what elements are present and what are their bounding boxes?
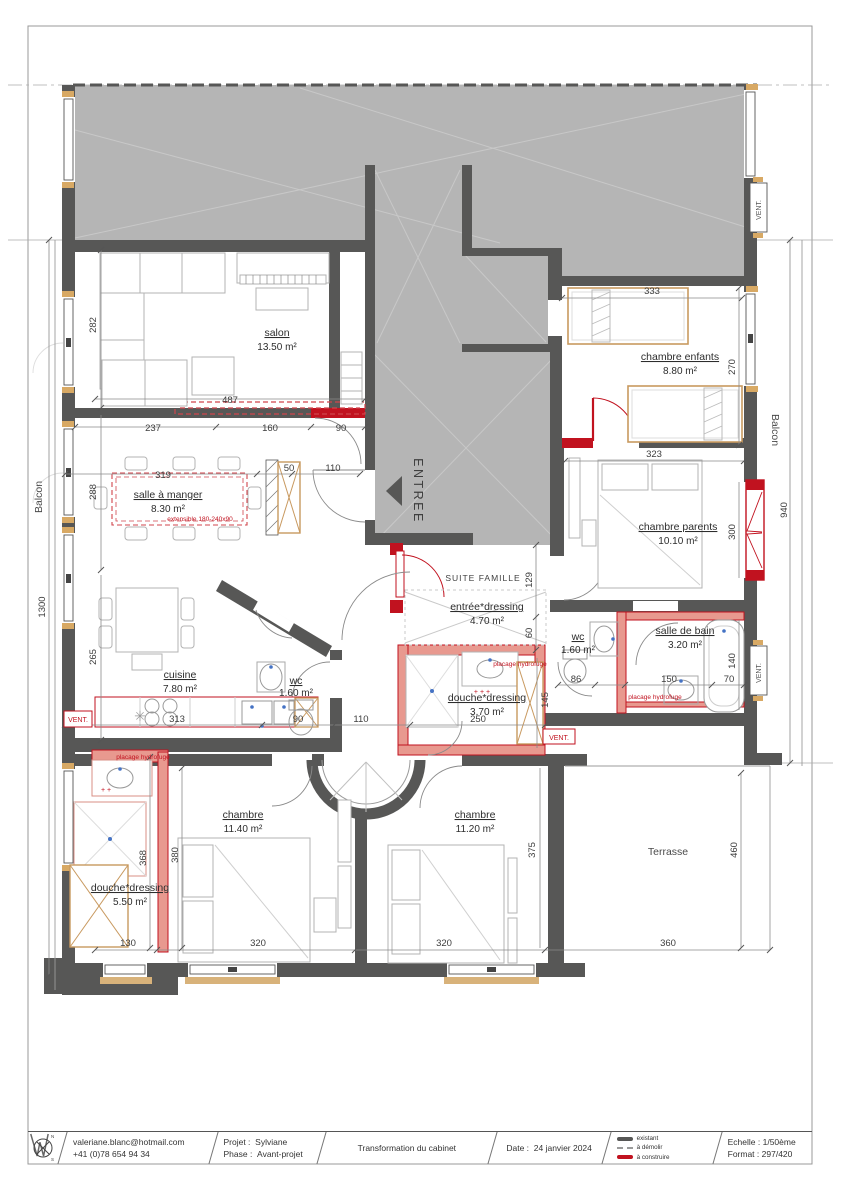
dim-288: 288: [88, 484, 99, 500]
divider: [206, 1131, 221, 1164]
dim-140: 140: [727, 653, 738, 669]
zone-entree: ENTREE: [411, 458, 425, 524]
kids-bed-1: [568, 288, 688, 344]
placage-3: placage hydrofuge: [628, 694, 682, 701]
legend-existing-swatch: [617, 1137, 633, 1141]
legend-build-label: à construire: [637, 1153, 670, 1162]
dim-940: 940: [779, 502, 790, 518]
kitchen-furniture: ✳: [95, 588, 318, 728]
kids-bed-2: [628, 386, 742, 442]
dim-160: 160: [262, 423, 278, 434]
room-area-salle-a-manger: 8.30 m²: [151, 504, 186, 515]
dim-50: 50: [284, 463, 295, 474]
room-label-douche-dressing-550: douche*dressing: [91, 882, 169, 894]
legend-build-swatch: [617, 1155, 633, 1159]
room-label-douche-dressing-370: douche*dressing: [448, 692, 526, 704]
room-area-wc-right: 1.60 m²: [561, 645, 596, 656]
date-value: 24 janvier 2024: [534, 1143, 592, 1153]
dim-487: 487: [222, 395, 238, 406]
vent-center: VENT.: [549, 735, 569, 742]
contact-cell: valeriane.blanc@hotmail.com +41 (0)78 65…: [69, 1132, 207, 1164]
dim-1300: 1300: [37, 596, 48, 617]
date-cell: Date : 24 janvier 2024: [499, 1132, 600, 1164]
svg-text:+ +: + +: [101, 787, 111, 794]
room-label-cuisine: cuisine: [164, 669, 197, 681]
dim-70: 70: [724, 674, 735, 685]
room-area-cuisine: 7.80 m²: [163, 684, 198, 695]
floor-plan-sheet: ✳ + + +: [0, 0, 841, 1190]
room-area-wc-left: 1.60 m²: [279, 688, 314, 699]
dim-313: 313: [169, 714, 185, 725]
legend-demolish-label: à démolir: [637, 1143, 663, 1152]
zone-suite-famille: SUITE FAMILLE: [445, 573, 520, 583]
dim-333: 333: [644, 286, 660, 297]
dim-60: 60: [524, 628, 535, 639]
zone-balcon-right: Balcon: [769, 414, 781, 446]
dim-90-wc: 90: [293, 714, 304, 725]
compass-south: S: [51, 1157, 54, 1162]
project-label: Projet :: [223, 1137, 250, 1147]
new-window-parents: [744, 480, 764, 580]
legend: existant à démolir à construire: [613, 1132, 679, 1164]
room-area-entree-dressing: 4.70 m²: [470, 616, 505, 627]
salon-furniture: [100, 253, 362, 406]
dim-150: 150: [661, 674, 677, 685]
room-label-salon: salon: [264, 327, 289, 339]
room-label-chambre-enfants: chambre enfants: [641, 351, 719, 363]
dim-360: 360: [660, 938, 676, 949]
fridge-symbol: ✳: [134, 708, 146, 724]
column-hatched: [266, 460, 278, 535]
format-label: Format :: [728, 1149, 760, 1159]
phase-name: Avant-projet: [257, 1149, 303, 1159]
divider: [485, 1131, 500, 1164]
divider: [599, 1131, 614, 1164]
dim-282: 282: [88, 317, 99, 333]
dim-130: 130: [120, 938, 136, 949]
dim-86: 86: [571, 674, 582, 685]
room-label-chambre-parents: chambre parents: [639, 521, 718, 533]
bedroom-1120-furniture: [388, 845, 517, 963]
dim-90-salon: 90: [336, 423, 347, 434]
contact-email: valeriane.blanc@hotmail.com: [73, 1136, 203, 1148]
dim-320-right: 320: [436, 938, 452, 949]
scale-cell: Echelle : 1/50ème Format : 297/420: [724, 1132, 812, 1164]
dim-320-left: 320: [250, 938, 266, 949]
scale-label: Echelle :: [728, 1137, 761, 1147]
compass-icon: N S: [28, 1132, 58, 1162]
room-label-wc-right: wc: [571, 631, 585, 643]
dim-380: 380: [170, 847, 181, 863]
dim-375: 375: [527, 842, 538, 858]
vent-left: VENT.: [68, 717, 88, 724]
room-area-chambre-parents: 10.10 m²: [658, 536, 698, 547]
room-area-douche-dressing-370: 3.70 m²: [470, 707, 505, 718]
zone-balcon-left: Balcon: [33, 481, 45, 513]
floor-plan-drawing: ✳ + + +: [0, 0, 841, 1190]
dim-110-hall: 110: [325, 463, 340, 474]
annotation-extensible: extensible 180-240x90: [167, 516, 233, 523]
room-label-salle-de-bain: salle de bain: [656, 625, 715, 637]
dim-145: 145: [540, 692, 551, 708]
vent-right-mid: VENT.: [756, 663, 763, 683]
drawing-title: Transformation du cabinet: [328, 1132, 486, 1164]
dim-129: 129: [524, 572, 535, 588]
project-cell: Projet : Sylviane Phase : Avant-projet: [219, 1132, 315, 1164]
title-block: valeriane.blanc@hotmail.com +41 (0)78 65…: [28, 1131, 812, 1164]
room-area-chambre-enfants: 8.80 m²: [663, 366, 698, 377]
project-name: Sylviane: [255, 1137, 287, 1147]
dim-237: 237: [145, 423, 161, 434]
legend-demolish-swatch: [617, 1147, 633, 1149]
room-area-chambre-1120: 11.20 m²: [456, 824, 495, 835]
room-area-salon: 13.50 m²: [257, 342, 297, 353]
dim-460: 460: [729, 842, 740, 858]
placage-2: placage hydrofuge: [493, 661, 547, 668]
compass: N S: [679, 1132, 711, 1164]
divider: [314, 1131, 329, 1164]
curved-bay-wall: [312, 760, 420, 814]
dim-323: 323: [646, 449, 662, 460]
dim-300: 300: [727, 524, 738, 540]
dim-319: 319: [155, 470, 171, 481]
scale-value: 1/50ème: [763, 1137, 796, 1147]
dim-368: 368: [138, 850, 149, 866]
room-label-wc-left: wc: [289, 675, 303, 687]
room-label-chambre-1140: chambre: [223, 809, 264, 821]
legend-existing-label: existant: [637, 1134, 659, 1143]
vent-right-top: VENT.: [756, 200, 763, 220]
divider: [710, 1131, 725, 1164]
piano-bench: [256, 288, 308, 310]
dim-110-kitchen: 110: [353, 714, 368, 725]
format-value: 297/420: [762, 1149, 793, 1159]
room-area-salle-de-bain: 3.20 m²: [668, 640, 703, 651]
room-label-chambre-1120: chambre: [455, 809, 496, 821]
dim-270: 270: [727, 359, 738, 375]
zone-terrasse: Terrasse: [648, 846, 688, 858]
dim-265: 265: [88, 649, 99, 665]
room-label-entree-dressing: entrée*dressing: [450, 601, 524, 613]
contact-phone: +41 (0)78 654 94 34: [73, 1148, 203, 1160]
compass-north: N: [51, 1134, 54, 1139]
room-area-chambre-1140: 11.40 m²: [224, 824, 263, 835]
room-label-salle-a-manger: salle à manger: [134, 489, 203, 501]
date-label: Date :: [506, 1143, 529, 1153]
placage-1: placage hydrofuge: [116, 754, 170, 761]
room-area-douche-dressing-550: 5.50 m²: [113, 897, 148, 908]
phase-label: Phase :: [223, 1149, 252, 1159]
